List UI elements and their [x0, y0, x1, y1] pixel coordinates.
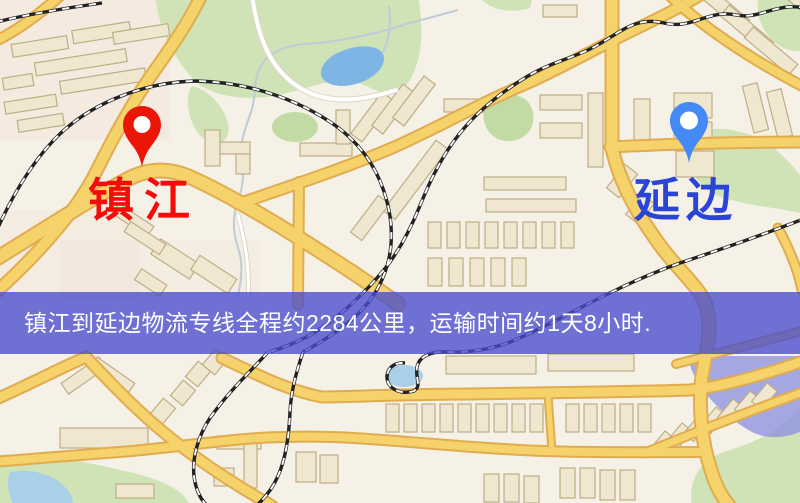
route-info-text: 镇江到延边物流专线全程约2284公里，运输时间约1天8小时. — [0, 292, 800, 354]
map-canvas[interactable] — [0, 0, 800, 503]
destination-pin-icon[interactable] — [667, 100, 711, 166]
map-screenshot: 镇江到延边物流专线全程约2284公里，运输时间约1天8小时. 镇江 延边 — [0, 0, 800, 503]
route-info-banner: 镇江到延边物流专线全程约2284公里，运输时间约1天8小时. — [0, 292, 800, 354]
destination-city-label: 延边 — [634, 177, 738, 223]
origin-pin-icon[interactable] — [120, 104, 164, 170]
origin-city-label: 镇江 — [88, 177, 200, 223]
